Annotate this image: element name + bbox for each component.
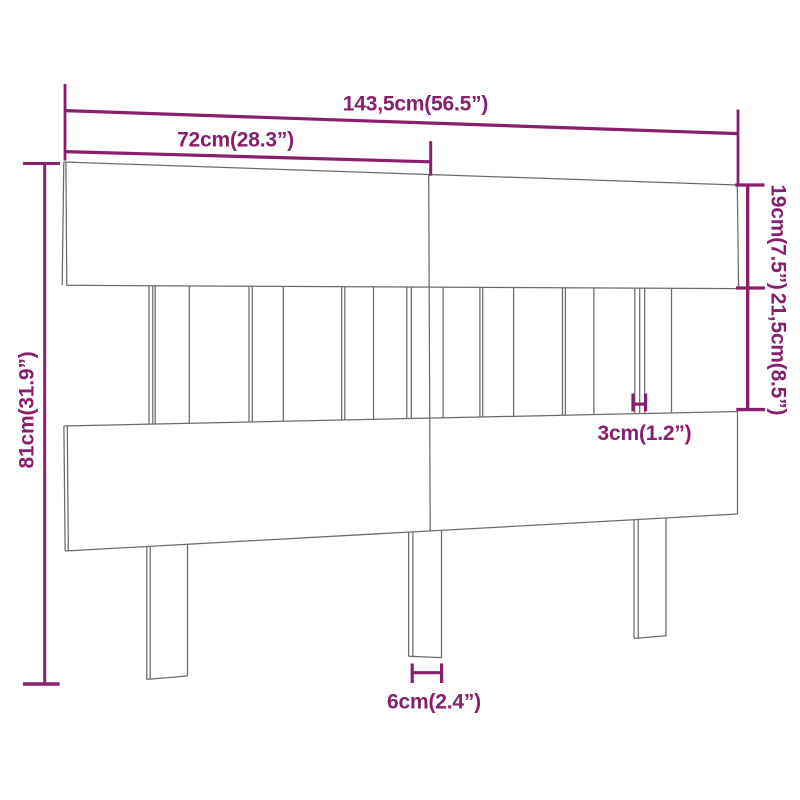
svg-text:143,5cm(56.5”): 143,5cm(56.5”) [343,93,488,116]
svg-text:72cm(28.3”): 72cm(28.3”) [177,129,294,152]
svg-text:19cm(7.5”): 19cm(7.5”) [767,184,790,289]
svg-text:81cm(31.9”): 81cm(31.9”) [16,352,39,469]
svg-text:3cm(1.2”): 3cm(1.2”) [598,422,692,445]
svg-text:21,5cm(8.5”): 21,5cm(8.5”) [767,293,790,416]
svg-text:6cm(2.4”): 6cm(2.4”) [387,691,481,714]
